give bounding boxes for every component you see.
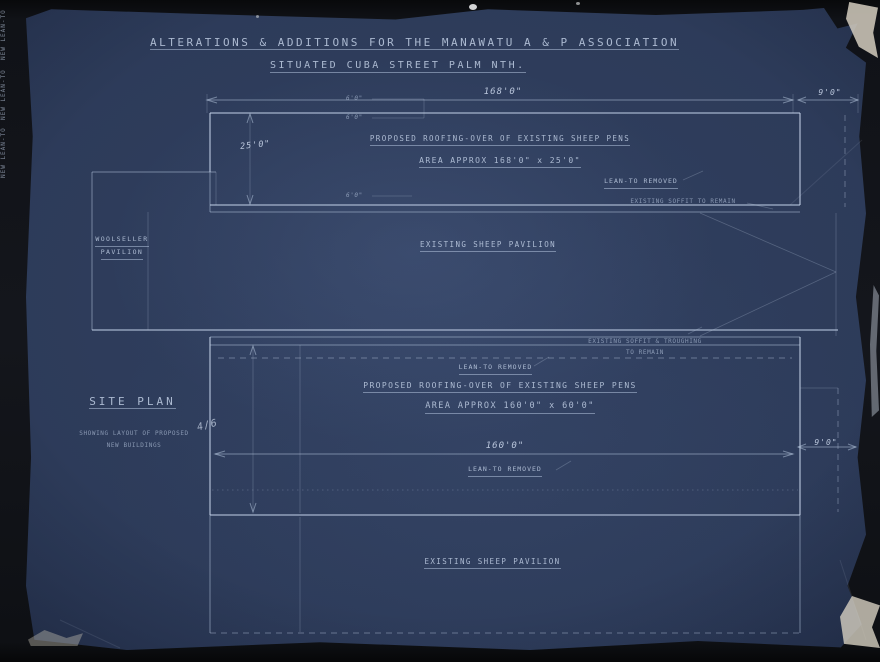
bay-dimension-label: 6'0" [346, 190, 363, 201]
paper-speck [576, 2, 580, 5]
upper-soffit-note: EXISTING SOFFIT TO REMAIN [616, 196, 750, 207]
pavilion-soffit-note-line1: EXISTING SOFFIT & TROUGHING [570, 336, 720, 347]
drawing-subtitle: SITUATED CUBA STREET PALM NTH. [270, 60, 510, 73]
drawing-title: ALTERATIONS & ADDITIONS FOR THE MANAWATU… [150, 37, 630, 50]
paper-creases [60, 140, 866, 648]
upper-lean-to-note: LEAN-TO REMOVED [595, 176, 687, 189]
existing-sheep-pavilion-label: EXISTING SHEEP PAVILION [398, 239, 578, 252]
site-plan-title: SITE PLAN [85, 396, 180, 409]
site-plan-subtitle-line1: SHOWING LAYOUT OF PROPOSED [70, 428, 198, 439]
lower-right-dimension-label: 9'0" [796, 437, 856, 448]
upper-height-dimension [247, 114, 253, 204]
bottom-plan-outline [210, 515, 800, 633]
paper-speck [256, 15, 259, 18]
lower-new-lean-to-left-label: NEW LEAN-TO [0, 60, 7, 120]
lower-lean-to-note-bottom: LEAN-TO REMOVED [455, 464, 555, 477]
paper-speck [469, 4, 477, 10]
site-plan-subtitle-line2: NEW BUILDINGS [70, 440, 198, 451]
lower-width-dimension-label: 160'0" [460, 441, 550, 452]
pavilion-outline [92, 212, 838, 337]
woolseller-pavilion-label: WOOLSELLER PAVILION [84, 234, 160, 260]
bay-dimension-label: 6'0" [346, 93, 363, 104]
lower-plan-heading: PROPOSED ROOFING-OVER OF EXISTING SHEEP … [340, 380, 660, 393]
lower-lean-to-note-top: LEAN-TO REMOVED [448, 362, 543, 375]
lower-new-lean-to-right-label: NEW LEAN-TO [0, 120, 7, 178]
upper-plan-heading: PROPOSED ROOFING-OVER OF EXISTING SHEEP … [350, 133, 650, 146]
lower-area-note: AREA APPROX 160'0" x 60'0" [400, 401, 620, 414]
bottom-existing-sheep-pavilion-label: EXISTING SHEEP PAVILION [400, 556, 585, 569]
lower-height-dimension [250, 346, 256, 512]
pavilion-soffit-note-line2: TO REMAIN [570, 347, 720, 358]
upper-width-dimension-label: 168'0" [458, 87, 548, 98]
bay-dimension-label: 6'0" [346, 112, 363, 123]
upper-right-dimension-label: 9'0" [800, 87, 860, 98]
upper-area-note: AREA APPROX 168'0" x 25'0" [395, 155, 605, 168]
upper-new-lean-to-label: NEW LEAN-TO [0, 0, 7, 60]
blueprint-photo: ALTERATIONS & ADDITIONS FOR THE MANAWATU… [0, 0, 880, 662]
leader-lines [534, 171, 773, 470]
